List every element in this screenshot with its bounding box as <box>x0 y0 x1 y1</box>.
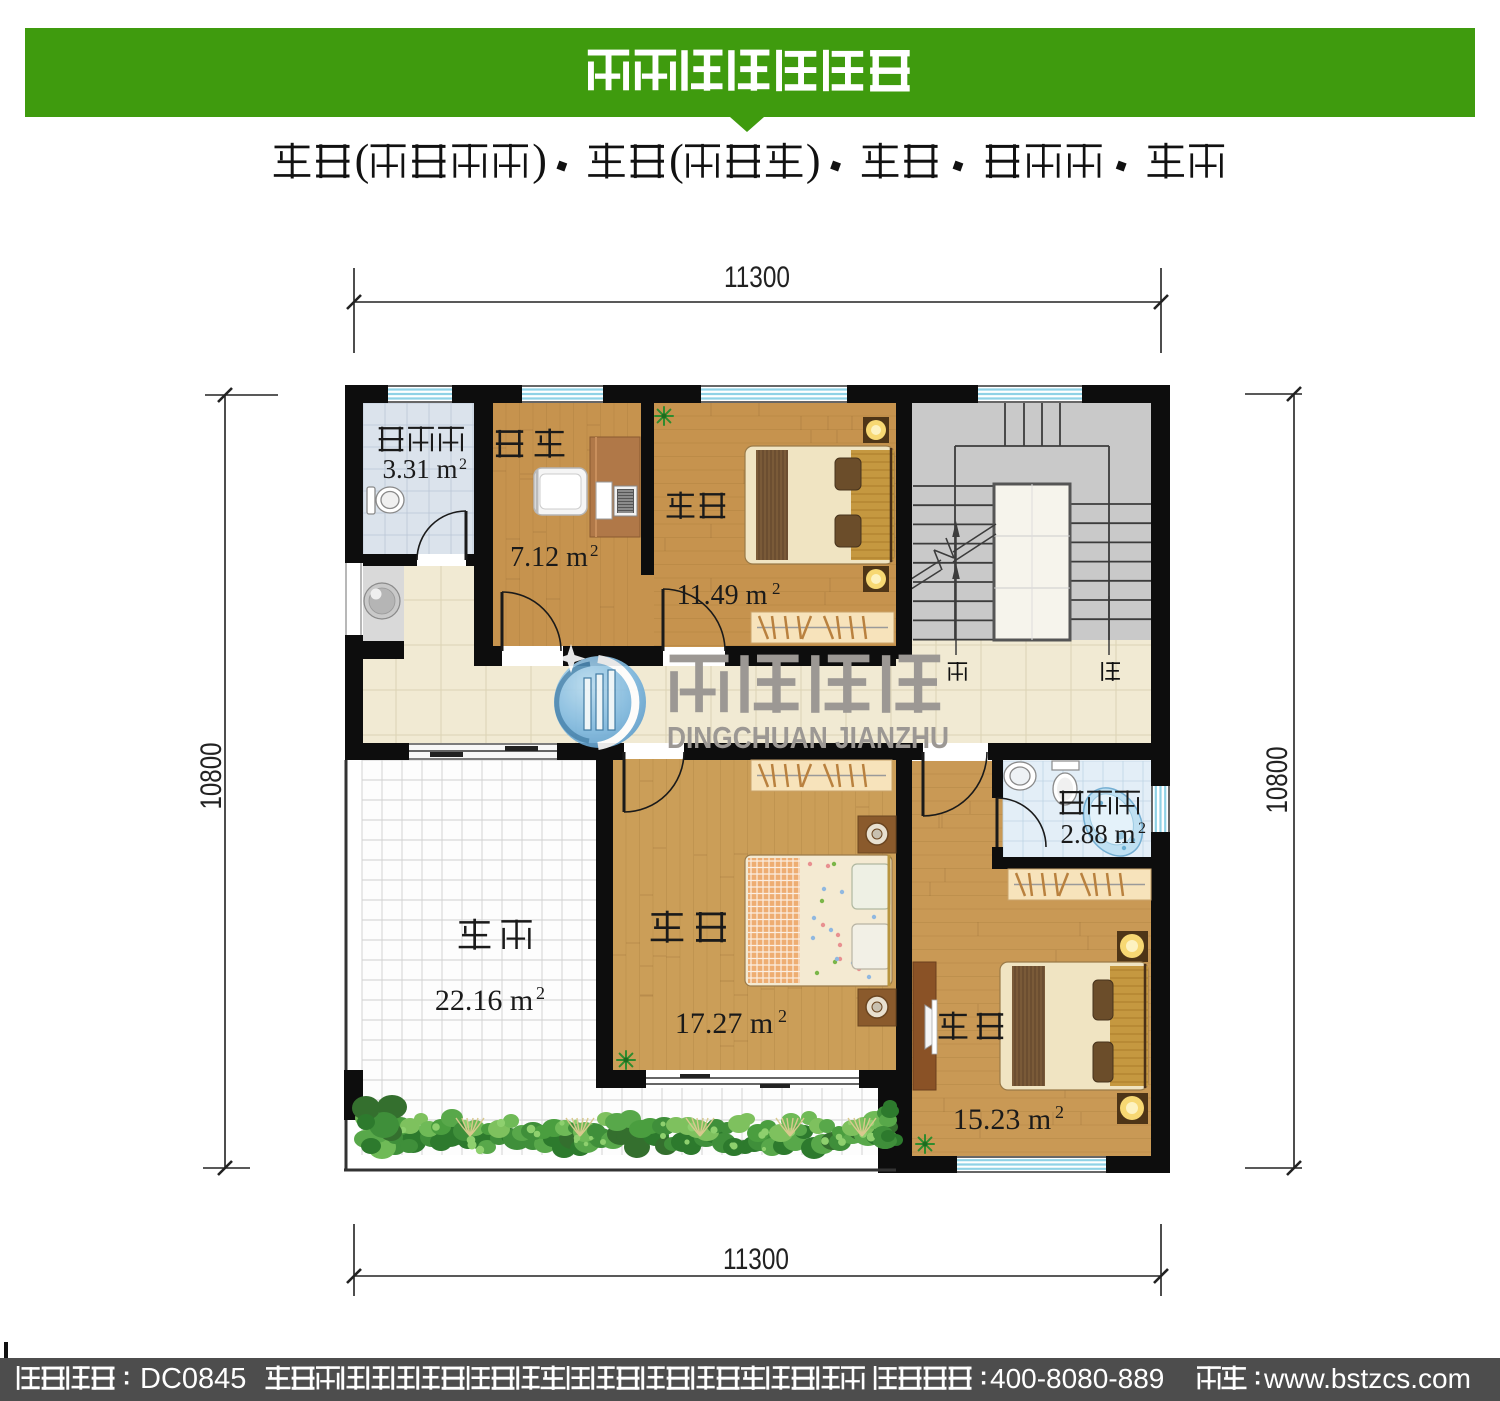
svg-text:www.bstzcs.com: www.bstzcs.com <box>1263 1363 1471 1394</box>
svg-text:(: ( <box>669 136 684 185</box>
svg-text:(: ( <box>355 136 370 185</box>
svg-text:22.16 m: 22.16 m <box>435 984 533 1017</box>
svg-text:400-8080-889: 400-8080-889 <box>990 1363 1164 1394</box>
svg-text:DINGCHUAN JIANZHU: DINGCHUAN JIANZHU <box>667 720 949 755</box>
svg-text:2: 2 <box>1138 820 1146 837</box>
svg-text:11300: 11300 <box>723 1243 789 1276</box>
svg-text:15.23 m: 15.23 m <box>953 1103 1051 1136</box>
svg-text:2: 2 <box>778 1006 787 1026</box>
svg-text:2: 2 <box>772 579 781 598</box>
svg-text:2: 2 <box>459 456 467 473</box>
svg-text:2: 2 <box>590 541 599 560</box>
svg-text:2.88 m: 2.88 m <box>1060 819 1135 849</box>
svg-text:11300: 11300 <box>724 261 790 294</box>
svg-text:17.27 m: 17.27 m <box>675 1007 773 1040</box>
svg-text:2: 2 <box>1055 1102 1064 1122</box>
svg-text:DC0845: DC0845 <box>140 1363 246 1395</box>
svg-text:10800: 10800 <box>195 743 228 810</box>
svg-text:2: 2 <box>536 983 545 1003</box>
svg-text:): ) <box>532 136 547 185</box>
svg-text:7.12 m: 7.12 m <box>510 542 588 573</box>
svg-text:): ) <box>806 136 821 185</box>
svg-text:11.49 m: 11.49 m <box>677 580 768 611</box>
svg-text:10800: 10800 <box>1261 747 1294 814</box>
svg-text:3.31 m: 3.31 m <box>382 454 457 484</box>
